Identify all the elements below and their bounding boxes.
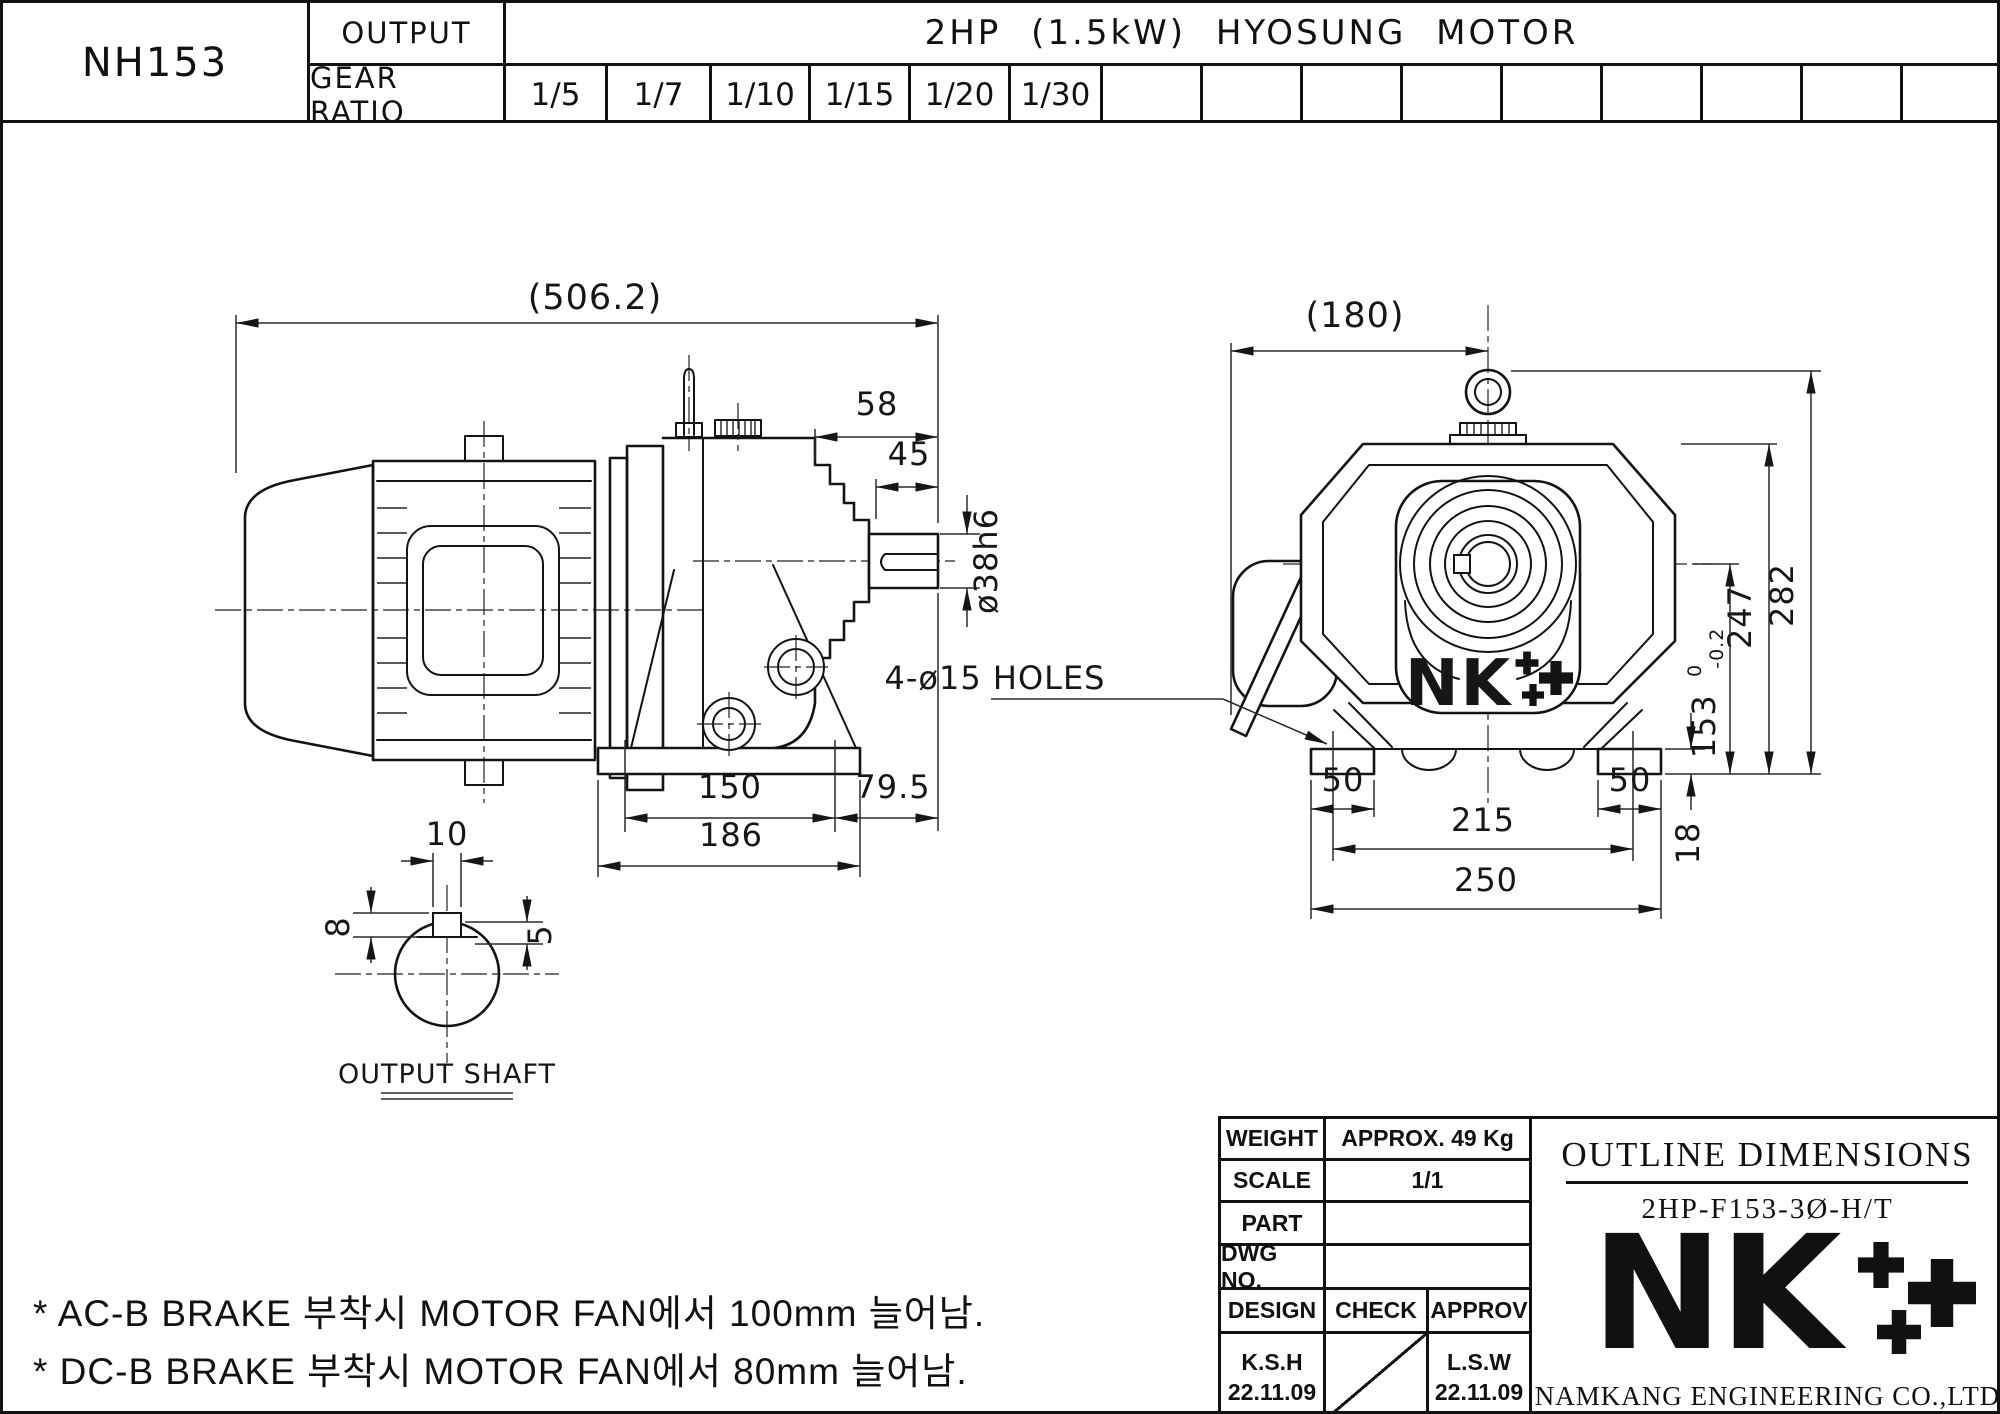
design-date: 22.11.09 bbox=[1228, 1377, 1316, 1407]
brake-notes: * AC-B BRAKE 부착시 MOTOR FAN에서 100mm 늘어남. … bbox=[33, 1285, 1133, 1401]
dim-width: (180) bbox=[1305, 296, 1404, 336]
dim-shaft-diameter: ø38h6 bbox=[967, 508, 1005, 614]
dim-key-height-left: 8 bbox=[319, 916, 357, 937]
scale-label-cell: SCALE bbox=[1221, 1161, 1326, 1203]
doc-title: OUTLINE DIMENSIONS bbox=[1532, 1135, 2000, 1175]
shaft-detail-dimensions: 10 8 5 bbox=[319, 815, 559, 970]
weight-value-cell: APPROX. 49 Kg bbox=[1326, 1119, 1532, 1161]
dim-center-tol-upper: 0 bbox=[1684, 664, 1706, 677]
output-shaft-label: OUTPUT SHAFT bbox=[338, 1059, 556, 1090]
dim-center-height-group: 153 0 -0.2 bbox=[1671, 628, 1728, 759]
design-label: DESIGN bbox=[1228, 1297, 1316, 1324]
label-underline bbox=[381, 1093, 513, 1099]
dim-key-height-right: 5 bbox=[521, 924, 559, 945]
company-name: NAMKANG ENGINEERING CO.,LTD bbox=[1532, 1381, 2000, 1412]
svg-text:153 0: 153 0 -0.2 bbox=[1671, 628, 1728, 759]
drawing-sheet: NH153 OUTPUT GEAR RATIO 2HP (1.5kW) HYOS… bbox=[0, 0, 2000, 1414]
case-logo-text: NK bbox=[1405, 647, 1513, 721]
check-label: CHECK bbox=[1335, 1297, 1417, 1324]
approv-name: L.S.W bbox=[1447, 1347, 1511, 1377]
design-label-cell: DESIGN bbox=[1221, 1290, 1326, 1334]
dim-overall-length: (506.2) bbox=[528, 278, 663, 318]
note-dc-brake: * DC-B BRAKE 부착시 MOTOR FAN에서 80mm 늘어남. bbox=[33, 1343, 1133, 1401]
dim-base-width: 250 bbox=[1454, 861, 1518, 899]
bore-keyway bbox=[1454, 555, 1470, 573]
foot-gusset-left bbox=[631, 570, 674, 748]
detail-centerlines bbox=[335, 885, 559, 1063]
scale-value-cell: 1/1 bbox=[1326, 1161, 1532, 1203]
bottom-bump-left bbox=[1402, 749, 1456, 770]
note-ac-brake: * AC-B BRAKE 부착시 MOTOR FAN에서 100mm 늘어남. bbox=[33, 1285, 1133, 1343]
dwg-value-cell bbox=[1326, 1246, 1532, 1290]
dim-overhang: 79.5 bbox=[855, 768, 930, 806]
weight-label-cell: WEIGHT bbox=[1221, 1119, 1326, 1161]
check-label-cell: CHECK bbox=[1326, 1290, 1429, 1334]
dwg-label: DWG NO. bbox=[1221, 1240, 1323, 1294]
dwg-label-cell: DWG NO. bbox=[1221, 1246, 1326, 1290]
company-logo-plusses bbox=[1847, 1237, 1987, 1367]
dim-foot-right: 50 bbox=[1609, 761, 1652, 799]
side-view: (506.2) 58 45 ø38h6 150 79.5 186 bbox=[215, 278, 1005, 877]
eyebolt-base-hatch bbox=[1467, 423, 1509, 435]
gearcase-steps bbox=[775, 438, 869, 748]
dim-foot-span: 150 bbox=[698, 768, 762, 806]
scale-label: SCALE bbox=[1233, 1167, 1311, 1194]
holes-note: 4-ø15 HOLES bbox=[885, 659, 1106, 697]
dim-foot-left: 50 bbox=[1322, 761, 1365, 799]
title-block: WEIGHT APPROX. 49 Kg SCALE 1/1 PART DWG … bbox=[1218, 1116, 2000, 1414]
approv-date: 22.11.09 bbox=[1435, 1377, 1523, 1407]
approv-signature-cell: L.S.W 22.11.09 bbox=[1429, 1334, 1532, 1414]
adapter-plate bbox=[610, 458, 627, 778]
key-section bbox=[433, 913, 461, 937]
dim-center-tol-lower: -0.2 bbox=[1706, 628, 1728, 669]
part-label: PART bbox=[1242, 1210, 1303, 1237]
weight-label: WEIGHT bbox=[1226, 1125, 1318, 1152]
foot-brace-left bbox=[1334, 703, 1392, 749]
doc-title-rule bbox=[1566, 1181, 1968, 1184]
approv-label-cell: APPROV bbox=[1429, 1290, 1532, 1334]
part-value-cell bbox=[1326, 1203, 1532, 1246]
weight-value: APPROX. 49 Kg bbox=[1341, 1125, 1514, 1152]
design-name: K.S.H bbox=[1241, 1347, 1302, 1377]
dim-base-thickness: 18 bbox=[1669, 822, 1707, 865]
dim-key-length: 45 bbox=[888, 435, 931, 473]
front-view: NK (180) 282 247 153 0 bbox=[885, 296, 1821, 919]
company-logo-nk: NK bbox=[1591, 1202, 1838, 1386]
dim-hole-span: 215 bbox=[1451, 801, 1515, 839]
dim-base-length: 186 bbox=[699, 816, 763, 854]
approv-label: APPROV bbox=[1430, 1297, 1527, 1324]
output-shaft bbox=[869, 534, 938, 588]
dim-shaft-extension: 58 bbox=[856, 385, 899, 423]
design-signature-cell: K.S.H 22.11.09 bbox=[1221, 1334, 1326, 1414]
check-signature-cell bbox=[1326, 1334, 1429, 1414]
company-logo-text: NK bbox=[1591, 1219, 1838, 1369]
bottom-bump-right bbox=[1520, 749, 1574, 770]
dim-key-width: 10 bbox=[426, 815, 469, 853]
scale-value: 1/1 bbox=[1412, 1167, 1444, 1194]
output-shaft-detail: 10 8 5 OUTPUT SHAFT bbox=[319, 815, 559, 1099]
